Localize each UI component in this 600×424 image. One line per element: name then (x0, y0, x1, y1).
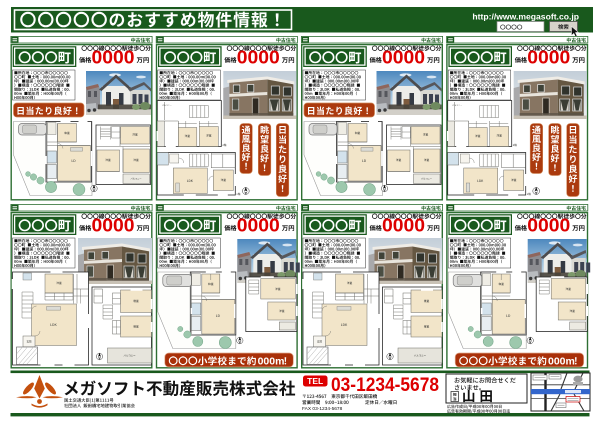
svg-text:FAX 03-1234-5678: FAX 03-1234-5678 (302, 406, 343, 412)
svg-text:TEL: TEL (307, 376, 323, 386)
svg-text:03-1234-5678: 03-1234-5678 (331, 375, 439, 396)
svg-text:http://www.megasoft.co.jp: http://www.megasoft.co.jp (472, 12, 579, 22)
